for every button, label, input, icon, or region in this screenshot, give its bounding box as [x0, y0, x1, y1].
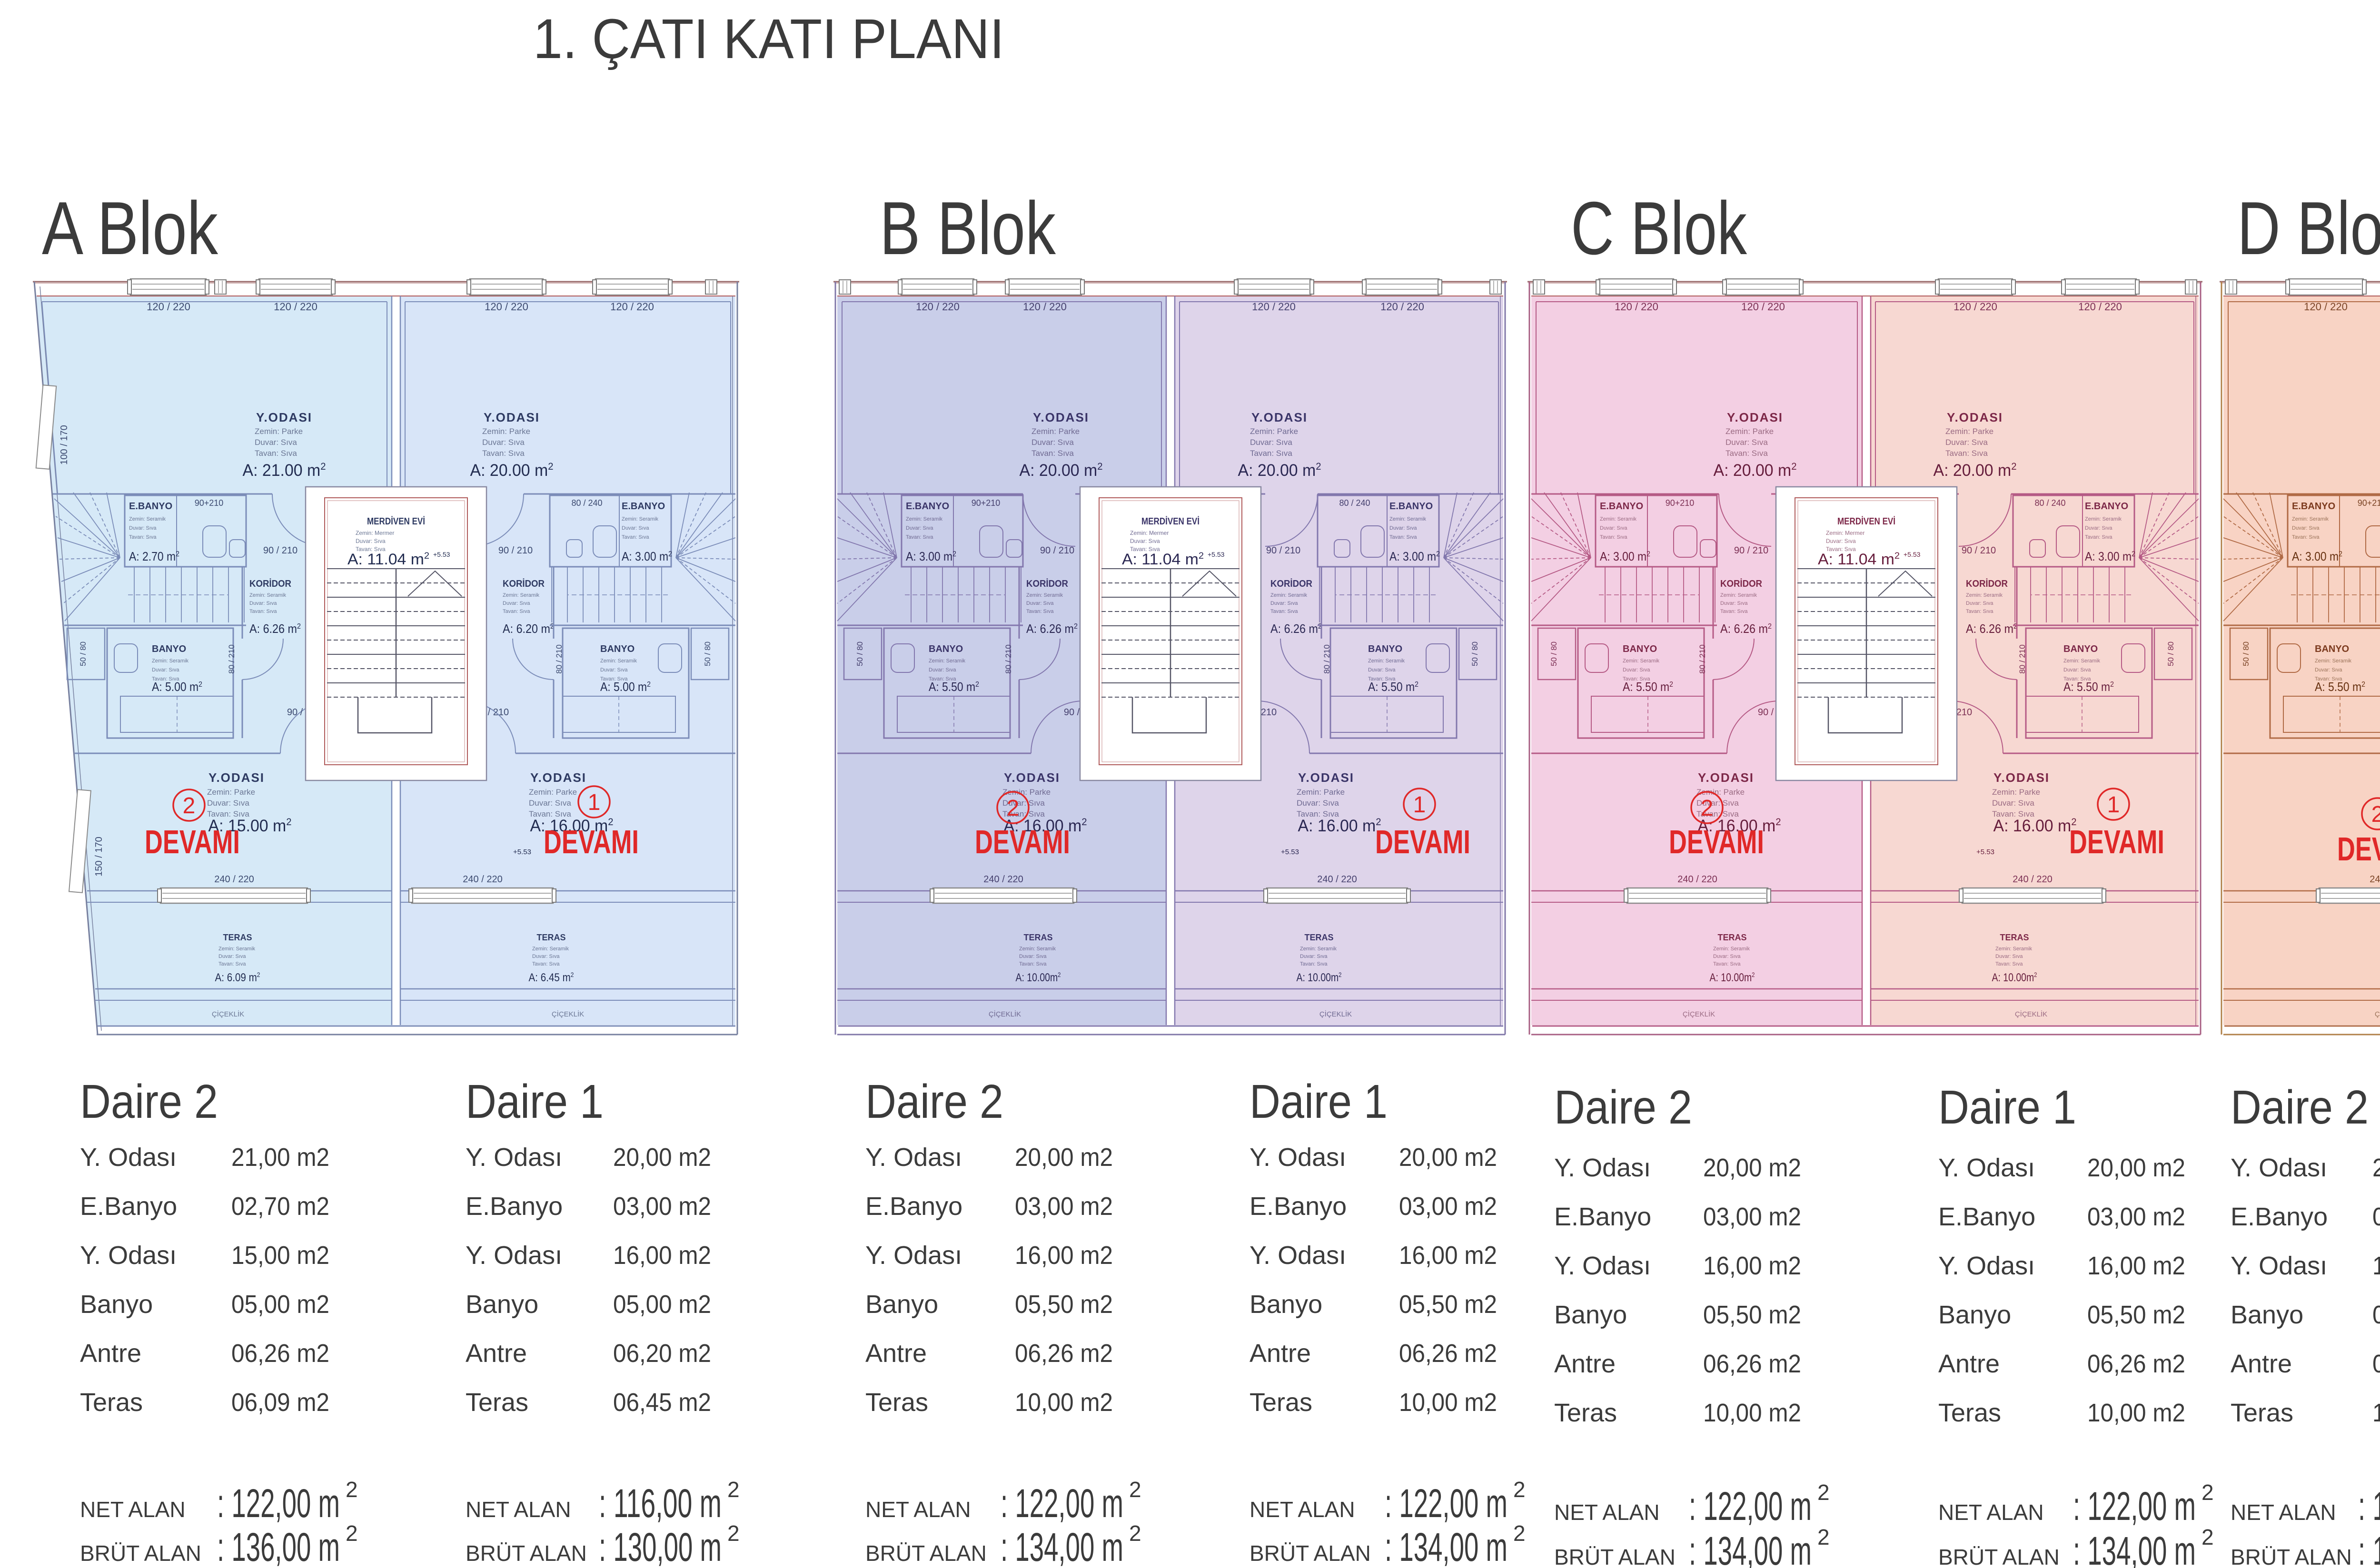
svg-text:90+210: 90+210	[972, 498, 1001, 508]
svg-text:Tavan: Sıva: Tavan: Sıva	[482, 449, 525, 458]
svg-text:Daire 2: Daire 2	[2231, 1081, 2369, 1134]
svg-text:Zemin: Mermer: Zemin: Mermer	[356, 530, 394, 536]
svg-text:Y.ODASI: Y.ODASI	[530, 770, 586, 785]
svg-text:05,50 m2: 05,50 m2	[1703, 1301, 1801, 1329]
svg-text:+5.53: +5.53	[513, 848, 531, 856]
svg-text:05,50 m2: 05,50 m2	[1399, 1290, 1497, 1319]
svg-text:Y.ODASI: Y.ODASI	[208, 770, 265, 785]
svg-text:Tavan: Sıva: Tavan: Sıva	[1995, 961, 2023, 967]
svg-text:120 / 220: 120 / 220	[1741, 301, 1785, 313]
svg-text:: 122,00 m: : 122,00 m	[1689, 1484, 1812, 1529]
svg-text:Tavan: Sıva: Tavan: Sıva	[1945, 449, 1988, 458]
svg-text:16,00 m2: 16,00 m2	[2087, 1252, 2185, 1280]
svg-text:A: 6.26 m2: A: 6.26 m2	[1720, 621, 1772, 636]
svg-text:Tavan: Sıva: Tavan: Sıva	[622, 534, 649, 540]
svg-text:Zemin: Seramik: Zemin: Seramik	[622, 516, 659, 522]
svg-text:Y.ODASI: Y.ODASI	[1947, 410, 2003, 424]
svg-text:DEVAMI: DEVAMI	[975, 823, 1070, 860]
svg-text:A: 5.00 m2: A: 5.00 m2	[600, 680, 651, 694]
svg-text:TERAS: TERAS	[1304, 933, 1333, 942]
svg-text:Y. Odası: Y. Odası	[2231, 1154, 2327, 1182]
svg-text:50 / 80: 50 / 80	[1549, 641, 1558, 666]
svg-text:Tavan: Sıva: Tavan: Sıva	[906, 534, 933, 540]
svg-text:A: 10.00m2: A: 10.00m2	[1297, 971, 1342, 984]
svg-text:10,00 m2: 10,00 m2	[1015, 1388, 1113, 1417]
svg-text:90+210: 90+210	[195, 498, 224, 508]
svg-text:120 / 220: 120 / 220	[147, 301, 190, 313]
svg-text:D Blok: D Blok	[2237, 187, 2380, 270]
svg-text:06,26 m2: 06,26 m2	[2372, 1350, 2380, 1378]
svg-text:80 / 240: 80 / 240	[2034, 498, 2065, 508]
svg-text:A: 5.50 m2: A: 5.50 m2	[2063, 680, 2114, 694]
svg-text:240 / 220: 240 / 220	[1317, 874, 1357, 885]
svg-text:05,00 m2: 05,00 m2	[613, 1290, 711, 1319]
svg-text:BRÜT ALAN: BRÜT ALAN	[80, 1541, 201, 1566]
svg-text:Zemin: Parke: Zemin: Parke	[255, 427, 303, 436]
svg-text:Daire 2: Daire 2	[80, 1075, 218, 1128]
svg-text:Duvar: Sıva: Duvar: Sıva	[1725, 438, 1768, 447]
svg-text:50 / 80: 50 / 80	[703, 641, 712, 666]
svg-text:E.BANYO: E.BANYO	[2085, 501, 2128, 512]
svg-text:Duvar: Sıva: Duvar: Sıva	[1826, 538, 1856, 544]
svg-text:Y.ODASI: Y.ODASI	[484, 410, 540, 424]
svg-text:21,00 m2: 21,00 m2	[231, 1143, 329, 1172]
svg-text:2: 2	[1129, 1521, 1141, 1546]
svg-text:90+210: 90+210	[2358, 498, 2380, 508]
svg-text:Y.ODASI: Y.ODASI	[1033, 410, 1089, 424]
svg-text:A: 6.26 m2: A: 6.26 m2	[1966, 621, 2017, 636]
svg-text:Y. Odası: Y. Odası	[80, 1241, 177, 1270]
svg-text:Tavan: Sıva: Tavan: Sıva	[1966, 609, 1993, 614]
svg-text:Tavan: Sıva: Tavan: Sıva	[255, 449, 297, 458]
svg-text:Y. Odası: Y. Odası	[2231, 1252, 2327, 1280]
svg-text:Duvar: Sıva: Duvar: Sıva	[249, 601, 277, 606]
svg-text:80 / 240: 80 / 240	[1339, 498, 1370, 508]
svg-text:Zemin: Seramik: Zemin: Seramik	[1623, 658, 1660, 664]
svg-text:2: 2	[727, 1521, 740, 1546]
svg-text:Tavan: Sıva: Tavan: Sıva	[2292, 534, 2320, 540]
svg-text:Zemin: Seramik: Zemin: Seramik	[906, 516, 943, 522]
svg-text:Duvar: Sıva: Duvar: Sıva	[1600, 525, 1627, 531]
svg-text:16,00 m2: 16,00 m2	[1015, 1241, 1113, 1270]
svg-text:A: 10.00m2: A: 10.00m2	[1710, 971, 1755, 984]
svg-text:Antre: Antre	[1249, 1339, 1311, 1368]
svg-text:Zemin: Parke: Zemin: Parke	[1031, 427, 1080, 436]
svg-text:90 / 210: 90 / 210	[263, 545, 297, 556]
svg-text:A: 3.00 m2: A: 3.00 m2	[2085, 549, 2135, 563]
svg-text:03,00 m2: 03,00 m2	[613, 1192, 711, 1221]
svg-text:Banyo: Banyo	[80, 1290, 153, 1319]
svg-text:Zemin: Parke: Zemin: Parke	[1297, 788, 1345, 797]
svg-text:03,00 m2: 03,00 m2	[2372, 1203, 2380, 1231]
svg-text:Banyo: Banyo	[2231, 1301, 2303, 1329]
svg-text:50 / 80: 50 / 80	[2166, 641, 2175, 666]
svg-text:Duvar: Sıva: Duvar: Sıva	[2085, 525, 2112, 531]
svg-text:BANYO: BANYO	[1623, 644, 1657, 654]
svg-text:120 / 220: 120 / 220	[1380, 301, 1424, 313]
svg-text:1: 1	[2107, 792, 2120, 818]
svg-text:TERAS: TERAS	[536, 933, 565, 942]
svg-text:Daire 1: Daire 1	[1938, 1081, 2076, 1134]
svg-text:05,00 m2: 05,00 m2	[231, 1290, 329, 1319]
svg-text:Tavan: Sıva: Tavan: Sıva	[129, 534, 157, 540]
svg-text:A: 5.50 m2: A: 5.50 m2	[1623, 680, 1673, 694]
svg-text:B Blok: B Blok	[880, 187, 1056, 270]
svg-text:90 / 210: 90 / 210	[1734, 545, 1768, 556]
svg-text:Antre: Antre	[2231, 1350, 2292, 1378]
svg-text:Y. Odası: Y. Odası	[865, 1143, 962, 1172]
svg-text:80 / 210: 80 / 210	[2018, 644, 2027, 673]
svg-text:E.BANYO: E.BANYO	[1389, 501, 1433, 512]
svg-text:16,00 m2: 16,00 m2	[1399, 1241, 1497, 1270]
svg-text:KORİDOR: KORİDOR	[503, 578, 545, 589]
svg-text:2: 2	[2201, 1525, 2214, 1549]
svg-text:: 136,00 m: : 136,00 m	[217, 1525, 340, 1568]
svg-text:Duvar: Sıva: Duvar: Sıva	[622, 525, 649, 531]
svg-text:120 / 220: 120 / 220	[2304, 301, 2348, 313]
svg-text:Duvar: Sıva: Duvar: Sıva	[1031, 438, 1074, 447]
svg-text:A: 3.00 m2: A: 3.00 m2	[906, 549, 956, 563]
svg-text:DEVAMI: DEVAMI	[1375, 823, 1470, 860]
svg-text:Duvar: Sıva: Duvar: Sıva	[1945, 438, 1988, 447]
svg-text:NET ALAN: NET ALAN	[2231, 1500, 2336, 1525]
svg-text:Teras: Teras	[1249, 1388, 1312, 1417]
svg-text:NET ALAN: NET ALAN	[1249, 1497, 1355, 1522]
svg-text:: 134,00 m: : 134,00 m	[2073, 1529, 2196, 1568]
svg-text:Duvar: Sıva: Duvar: Sıva	[1297, 799, 1339, 808]
svg-text:02,70 m2: 02,70 m2	[231, 1192, 329, 1221]
svg-text:E.BANYO: E.BANYO	[906, 501, 949, 512]
svg-text:16,00 m2: 16,00 m2	[2372, 1252, 2380, 1280]
svg-text:50 / 80: 50 / 80	[855, 641, 864, 666]
svg-text:2: 2	[1701, 796, 1714, 821]
svg-text:Y. Odası: Y. Odası	[1249, 1241, 1346, 1270]
svg-text:80 / 240: 80 / 240	[571, 498, 602, 508]
svg-text:Y.ODASI: Y.ODASI	[1727, 410, 1783, 424]
svg-text:240 / 220: 240 / 220	[1677, 874, 1717, 885]
svg-text:Tavan: Sıva: Tavan: Sıva	[1300, 961, 1328, 967]
svg-text:10,00 m2: 10,00 m2	[1399, 1388, 1497, 1417]
svg-text:Y.ODASI: Y.ODASI	[1993, 770, 2050, 785]
svg-text:240 / 220: 240 / 220	[463, 874, 502, 885]
svg-text:A: 11.04 m2: A: 11.04 m2	[347, 551, 429, 568]
svg-text:E.Banyo: E.Banyo	[80, 1192, 177, 1221]
svg-text:Teras: Teras	[865, 1388, 928, 1417]
svg-text:20,00 m2: 20,00 m2	[2087, 1154, 2185, 1182]
svg-text:240 / 220: 240 / 220	[983, 874, 1023, 885]
svg-text:16,00 m2: 16,00 m2	[613, 1241, 711, 1270]
svg-text:240 / 220: 240 / 220	[2013, 874, 2052, 885]
svg-text:MERDİVEN EVİ: MERDİVEN EVİ	[367, 516, 425, 527]
svg-text:Y.ODASI: Y.ODASI	[1298, 770, 1354, 785]
svg-text:: 122,00 m: : 122,00 m	[2073, 1484, 2196, 1529]
svg-text:E.BANYO: E.BANYO	[2292, 501, 2335, 512]
svg-text:BRÜT ALAN: BRÜT ALAN	[1554, 1545, 1676, 1568]
svg-text:A: 6.20 m2: A: 6.20 m2	[503, 621, 554, 636]
svg-text:: 122,00 m: : 122,00 m	[217, 1481, 340, 1526]
svg-text:100 / 170: 100 / 170	[59, 425, 69, 464]
svg-text:: 134,00 m: : 134,00 m	[1001, 1525, 1123, 1568]
svg-text:Banyo: Banyo	[865, 1290, 938, 1319]
svg-text:Zemin: Parke: Zemin: Parke	[1992, 788, 2040, 797]
svg-text:E.BANYO: E.BANYO	[622, 501, 665, 512]
svg-text:1. ÇATI KATI PLANI: 1. ÇATI KATI PLANI	[533, 8, 1004, 70]
svg-text:Duvar: Sıva: Duvar: Sıva	[1270, 601, 1298, 606]
svg-text:50 / 80: 50 / 80	[1470, 641, 1479, 666]
svg-text:06,26 m2: 06,26 m2	[1703, 1350, 1801, 1378]
svg-text:Zemin: Seramik: Zemin: Seramik	[1368, 658, 1405, 664]
svg-text:Banyo: Banyo	[466, 1290, 538, 1319]
svg-text:ÇİÇEKLİK: ÇİÇEKLİK	[2015, 1010, 2047, 1018]
svg-text:2: 2	[183, 793, 196, 819]
svg-text:10,00 m2: 10,00 m2	[2087, 1399, 2185, 1427]
svg-text:80 / 210: 80 / 210	[555, 644, 564, 673]
svg-text:Tavan: Sıva: Tavan: Sıva	[2085, 534, 2112, 540]
svg-text:DEVAMI: DEVAMI	[2069, 823, 2164, 860]
svg-text:Zemin: Parke: Zemin: Parke	[207, 788, 255, 797]
svg-text:Zemin: Seramik: Zemin: Seramik	[2292, 516, 2329, 522]
svg-text:Tavan: Sıva: Tavan: Sıva	[249, 609, 277, 614]
svg-text:Tavan: Sıva: Tavan: Sıva	[1389, 534, 1417, 540]
svg-text:A: 20.00 m2: A: 20.00 m2	[470, 461, 554, 480]
svg-text:120 / 220: 120 / 220	[1252, 301, 1296, 313]
svg-text:Zemin: Seramik: Zemin: Seramik	[249, 592, 287, 598]
svg-text:Zemin: Seramik: Zemin: Seramik	[2085, 516, 2122, 522]
svg-text:Y. Odası: Y. Odası	[80, 1143, 177, 1172]
svg-text:20,00 m2: 20,00 m2	[613, 1143, 711, 1172]
svg-text:Zemin: Seramik: Zemin: Seramik	[532, 946, 569, 952]
svg-text:Y. Odası: Y. Odası	[1249, 1143, 1346, 1172]
svg-text:A: 6.26 m2: A: 6.26 m2	[1270, 621, 1322, 636]
svg-text:120 / 220: 120 / 220	[2078, 301, 2122, 313]
svg-text:TERAS: TERAS	[1717, 933, 1746, 942]
svg-text:Tavan: Sıva: Tavan: Sıva	[1026, 609, 1054, 614]
svg-text:Duvar: Sıva: Duvar: Sıva	[356, 538, 386, 544]
svg-text:Duvar: Sıva: Duvar: Sıva	[503, 601, 530, 606]
svg-text:120 / 220: 120 / 220	[274, 301, 317, 313]
svg-text:Tavan: Sıva: Tavan: Sıva	[503, 609, 530, 614]
svg-text:Duvar: Sıva: Duvar: Sıva	[1995, 954, 2023, 959]
svg-text:Tavan: Sıva: Tavan: Sıva	[1725, 449, 1768, 458]
svg-text:Antre: Antre	[1554, 1350, 1616, 1378]
svg-text:+5.53: +5.53	[1904, 551, 1921, 558]
svg-text:Y. Odası: Y. Odası	[466, 1143, 562, 1172]
svg-text:Y. Odası: Y. Odası	[865, 1241, 962, 1270]
svg-text:2: 2	[1817, 1525, 1830, 1549]
svg-text:KORİDOR: KORİDOR	[1720, 578, 1763, 589]
svg-text:Zemin: Seramik: Zemin: Seramik	[1270, 592, 1308, 598]
svg-text:Duvar: Sıva: Duvar: Sıva	[1389, 525, 1417, 531]
svg-text:A: 3.00 m2: A: 3.00 m2	[622, 549, 672, 563]
svg-text:2: 2	[1129, 1477, 1141, 1502]
svg-text:Tavan: Sıva: Tavan: Sıva	[1019, 961, 1047, 967]
svg-text:Duvar: Sıva: Duvar: Sıva	[255, 438, 297, 447]
svg-text:Tavan: Sıva: Tavan: Sıva	[1250, 449, 1292, 458]
svg-text:Zemin: Parke: Zemin: Parke	[1725, 427, 1774, 436]
svg-text:240 / 220: 240 / 220	[2370, 874, 2380, 885]
svg-text:06,26 m2: 06,26 m2	[1399, 1339, 1497, 1368]
svg-text:A: 3.00 m2: A: 3.00 m2	[1389, 549, 1440, 563]
svg-text:2: 2	[2201, 1480, 2214, 1505]
svg-text:Teras: Teras	[1938, 1399, 2001, 1427]
svg-text:Zemin: Seramik: Zemin: Seramik	[1966, 592, 2003, 598]
svg-text:DEVAMI: DEVAMI	[544, 823, 639, 860]
svg-text:Zemin: Seramik: Zemin: Seramik	[2315, 658, 2352, 664]
svg-text:2: 2	[1817, 1480, 1830, 1505]
svg-text:Duvar: Sıva: Duvar: Sıva	[2315, 667, 2342, 673]
svg-text:ÇİÇEKLİK: ÇİÇEKLİK	[2375, 1010, 2380, 1018]
svg-text:BANYO: BANYO	[1368, 644, 1402, 654]
svg-text:A: 3.00 m2: A: 3.00 m2	[2292, 549, 2342, 563]
svg-text:Zemin: Seramik: Zemin: Seramik	[1713, 946, 1750, 952]
svg-text:Y.ODASI: Y.ODASI	[1004, 770, 1060, 785]
svg-text:BRÜT ALAN: BRÜT ALAN	[1249, 1541, 1371, 1566]
svg-text:A: 5.50 m2: A: 5.50 m2	[2315, 680, 2365, 694]
svg-text:: 116,00 m: : 116,00 m	[599, 1481, 722, 1526]
svg-text:05,50 m2: 05,50 m2	[1015, 1290, 1113, 1319]
svg-text:Duvar: Sıva: Duvar: Sıva	[929, 667, 956, 673]
svg-text:Y. Odası: Y. Odası	[1938, 1252, 2035, 1280]
svg-text:Antre: Antre	[466, 1339, 527, 1368]
svg-text:15,00 m2: 15,00 m2	[231, 1241, 329, 1270]
svg-text:1: 1	[588, 790, 601, 815]
svg-text:Zemin: Parke: Zemin: Parke	[482, 427, 530, 436]
svg-text:DEVAMI: DEVAMI	[145, 823, 240, 860]
svg-text:80 / 210: 80 / 210	[227, 644, 236, 673]
svg-text:A: 6.26 m2: A: 6.26 m2	[249, 621, 301, 636]
svg-text:C Blok: C Blok	[1571, 187, 1747, 270]
svg-text:A Blok: A Blok	[42, 187, 218, 270]
svg-text:Teras: Teras	[2231, 1399, 2293, 1427]
svg-text:90 / 210: 90 / 210	[1040, 545, 1074, 556]
svg-text:Zemin: Seramik: Zemin: Seramik	[600, 658, 637, 664]
svg-text:KORİDOR: KORİDOR	[1270, 578, 1313, 589]
svg-text:Zemin: Parke: Zemin: Parke	[1945, 427, 1993, 436]
svg-text:80 / 210: 80 / 210	[1698, 644, 1707, 673]
svg-text:16,00 m2: 16,00 m2	[1703, 1252, 1801, 1280]
svg-text:NET ALAN: NET ALAN	[865, 1497, 971, 1522]
svg-text:06,26 m2: 06,26 m2	[231, 1339, 329, 1368]
svg-text:BANYO: BANYO	[929, 644, 963, 654]
svg-text:Daire 1: Daire 1	[1249, 1075, 1388, 1128]
svg-text:Teras: Teras	[466, 1388, 528, 1417]
svg-text:Y.ODASI: Y.ODASI	[1251, 410, 1308, 424]
svg-text:A: 21.00 m2: A: 21.00 m2	[243, 461, 326, 480]
svg-text:20,00 m2: 20,00 m2	[1703, 1154, 1801, 1182]
svg-text:A: 5.50 m2: A: 5.50 m2	[1368, 680, 1418, 694]
svg-text:BRÜT ALAN: BRÜT ALAN	[865, 1541, 987, 1566]
svg-text:E.BANYO: E.BANYO	[129, 501, 172, 512]
svg-text:90 / 210: 90 / 210	[1266, 545, 1300, 556]
svg-text:Duvar: Sıva: Duvar: Sıva	[1026, 601, 1054, 606]
svg-text:Tavan: Sıva: Tavan: Sıva	[1031, 449, 1074, 458]
svg-text:Teras: Teras	[80, 1388, 143, 1417]
svg-text:Zemin: Seramik: Zemin: Seramik	[129, 516, 166, 522]
svg-text:A: 11.04 m2: A: 11.04 m2	[1122, 551, 1204, 568]
svg-text:: 130,00 m: : 130,00 m	[599, 1525, 722, 1568]
svg-text:A: 2.70 m2: A: 2.70 m2	[129, 549, 179, 563]
svg-text:03,00 m2: 03,00 m2	[1703, 1203, 1801, 1231]
svg-text:Daire 1: Daire 1	[466, 1075, 604, 1128]
svg-text:Duvar: Sıva: Duvar: Sıva	[1966, 601, 1993, 606]
svg-text:A: 10.00m2: A: 10.00m2	[1016, 971, 1061, 984]
svg-text:Antre: Antre	[865, 1339, 927, 1368]
svg-text:DEVAMI: DEVAMI	[2337, 830, 2380, 868]
svg-text:: 134,00 m: : 134,00 m	[1385, 1525, 1507, 1568]
svg-text:E.Banyo: E.Banyo	[466, 1192, 563, 1221]
svg-text:ÇİÇEKLİK: ÇİÇEKLİK	[552, 1010, 584, 1018]
svg-text:Zemin: Seramik: Zemin: Seramik	[152, 658, 189, 664]
svg-text:2: 2	[346, 1521, 358, 1546]
svg-text:TERAS: TERAS	[2000, 933, 2029, 942]
svg-text:Tavan: Sıva: Tavan: Sıva	[1713, 961, 1741, 967]
svg-text:+5.53: +5.53	[1281, 848, 1299, 856]
svg-text:90+210: 90+210	[1666, 498, 1695, 508]
svg-text:20,00 m2: 20,00 m2	[2372, 1154, 2380, 1182]
svg-text:A: 10.00m2: A: 10.00m2	[1992, 971, 2037, 984]
svg-text:06,20 m2: 06,20 m2	[613, 1339, 711, 1368]
svg-text:2: 2	[727, 1477, 740, 1502]
svg-text:06,26 m2: 06,26 m2	[2087, 1350, 2185, 1378]
svg-text:A: 20.00 m2: A: 20.00 m2	[1714, 461, 1797, 480]
svg-text:2: 2	[1007, 796, 1020, 821]
svg-text:A: 16.00 m2: A: 16.00 m2	[1298, 817, 1381, 835]
svg-text:BRÜT ALAN: BRÜT ALAN	[1938, 1545, 2060, 1568]
svg-text:Y.ODASI: Y.ODASI	[1698, 770, 1754, 785]
svg-text:: 134,00 m: : 134,00 m	[1689, 1529, 1812, 1568]
svg-text:Duvar: Sıva: Duvar: Sıva	[1623, 667, 1650, 673]
svg-text:2: 2	[1513, 1477, 1526, 1502]
svg-text:Y. Odası: Y. Odası	[466, 1241, 562, 1270]
svg-text:E.Banyo: E.Banyo	[2231, 1203, 2328, 1231]
svg-text:A: 3.00 m2: A: 3.00 m2	[1600, 549, 1650, 563]
svg-text:ÇİÇEKLİK: ÇİÇEKLİK	[1683, 1010, 1715, 1018]
svg-text:120 / 220: 120 / 220	[1615, 301, 1658, 313]
svg-text:Zemin: Mermer: Zemin: Mermer	[1826, 530, 1864, 536]
svg-text:2: 2	[2371, 802, 2380, 827]
svg-text:06,45 m2: 06,45 m2	[613, 1388, 711, 1417]
svg-text:Y.ODASI: Y.ODASI	[256, 410, 312, 424]
svg-text:240 / 220: 240 / 220	[214, 874, 254, 885]
svg-text:ÇİÇEKLİK: ÇİÇEKLİK	[212, 1010, 244, 1018]
svg-text:Zemin: Seramik: Zemin: Seramik	[929, 658, 966, 664]
svg-text:Duvar: Sıva: Duvar: Sıva	[532, 954, 560, 959]
svg-text:E.Banyo: E.Banyo	[1249, 1192, 1347, 1221]
svg-text:Zemin: Seramik: Zemin: Seramik	[1995, 946, 2033, 952]
svg-text:06,09 m2: 06,09 m2	[231, 1388, 329, 1417]
svg-text:Duvar: Sıva: Duvar: Sıva	[600, 667, 628, 673]
svg-text:20,00 m2: 20,00 m2	[1399, 1143, 1497, 1172]
svg-text:BRÜT ALAN: BRÜT ALAN	[2231, 1545, 2352, 1568]
svg-text:80 / 210: 80 / 210	[1322, 644, 1331, 673]
svg-text:BANYO: BANYO	[2063, 644, 2098, 654]
svg-text:10,00 m2: 10,00 m2	[1703, 1399, 1801, 1427]
svg-text:Teras: Teras	[1554, 1399, 1617, 1427]
svg-text:Zemin: Seramik: Zemin: Seramik	[503, 592, 540, 598]
svg-text:Duvar: Sıva: Duvar: Sıva	[906, 525, 933, 531]
svg-text:NET ALAN: NET ALAN	[1554, 1500, 1660, 1525]
svg-text:: 134,00 m: : 134,00 m	[2358, 1529, 2380, 1568]
svg-text:Antre: Antre	[80, 1339, 141, 1368]
svg-text:120 / 220: 120 / 220	[1023, 301, 1067, 313]
svg-text:Tavan: Sıva: Tavan: Sıva	[218, 961, 246, 967]
svg-text:Duvar: Sıva: Duvar: Sıva	[2292, 525, 2320, 531]
svg-text:Banyo: Banyo	[1938, 1301, 2011, 1329]
svg-text:NET ALAN: NET ALAN	[80, 1497, 186, 1522]
svg-text:A: 16.00 m2: A: 16.00 m2	[1993, 817, 2077, 835]
svg-text:NET ALAN: NET ALAN	[1938, 1500, 2044, 1525]
svg-text:Zemin: Seramik: Zemin: Seramik	[1720, 592, 1757, 598]
